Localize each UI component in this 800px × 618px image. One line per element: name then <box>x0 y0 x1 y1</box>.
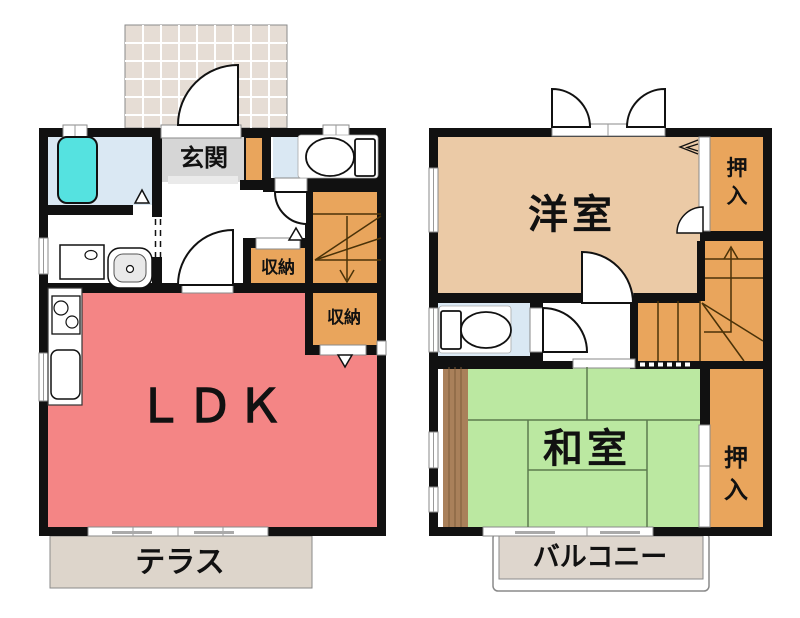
kitchen-sink <box>51 350 80 399</box>
second-floor-plan: 洋室 和室 押 入 押 入 バルコニー <box>429 89 772 591</box>
western-room-label: 洋室 <box>528 193 616 237</box>
first-floor-plan: 玄関 ＬＤＫ 収納 収納 テラス <box>39 25 386 588</box>
stove-burner-2 <box>66 316 78 328</box>
floor-plan-svg: 玄関 ＬＤＫ 収納 収納 テラス <box>0 0 800 618</box>
double-door-left <box>552 89 590 127</box>
fixtures-2f <box>439 306 511 353</box>
storage2-label: 収納 <box>327 307 361 327</box>
double-door-right <box>627 89 665 127</box>
japanese-room-label: 和室 <box>543 427 631 471</box>
stove-burner-1 <box>54 301 68 315</box>
genkan-step <box>168 176 238 184</box>
closet-upper-label-char2: 入 <box>727 185 748 208</box>
toilet-door-2f <box>543 308 587 352</box>
toilet-door-1f <box>275 192 307 224</box>
toilet-bowl-1f <box>306 138 354 176</box>
balcony-label: バルコニー <box>533 542 667 572</box>
stairs-1f <box>313 192 377 283</box>
toilet-tank-1f <box>355 139 375 176</box>
genkan-label: 玄関 <box>180 144 228 172</box>
shoe-cabinet <box>245 137 263 182</box>
bathtub <box>58 137 97 203</box>
closet-upper <box>710 137 764 231</box>
storage1-door-marker <box>289 228 303 240</box>
washing-machine-knob <box>85 251 97 260</box>
closet-upper-label-char1: 押 <box>727 156 748 180</box>
toilet-bowl-2f <box>461 312 511 348</box>
washroom-opening-dashes <box>156 219 161 257</box>
terrace-label: テラス <box>135 546 224 579</box>
toilet-tank-2f <box>441 311 461 349</box>
floor-plan: 玄関 ＬＤＫ 収納 収納 テラス <box>0 0 800 618</box>
hall-ldk-door <box>178 230 233 285</box>
ldk-label: ＬＤＫ <box>137 380 287 432</box>
closet-lower-label-char1: 押 <box>724 445 748 472</box>
stove <box>52 296 80 334</box>
washing-machine <box>60 245 104 279</box>
storage1-label: 収納 <box>261 257 295 277</box>
closet-lower-label-char2: 入 <box>724 477 748 504</box>
vanity-drain <box>127 266 134 273</box>
